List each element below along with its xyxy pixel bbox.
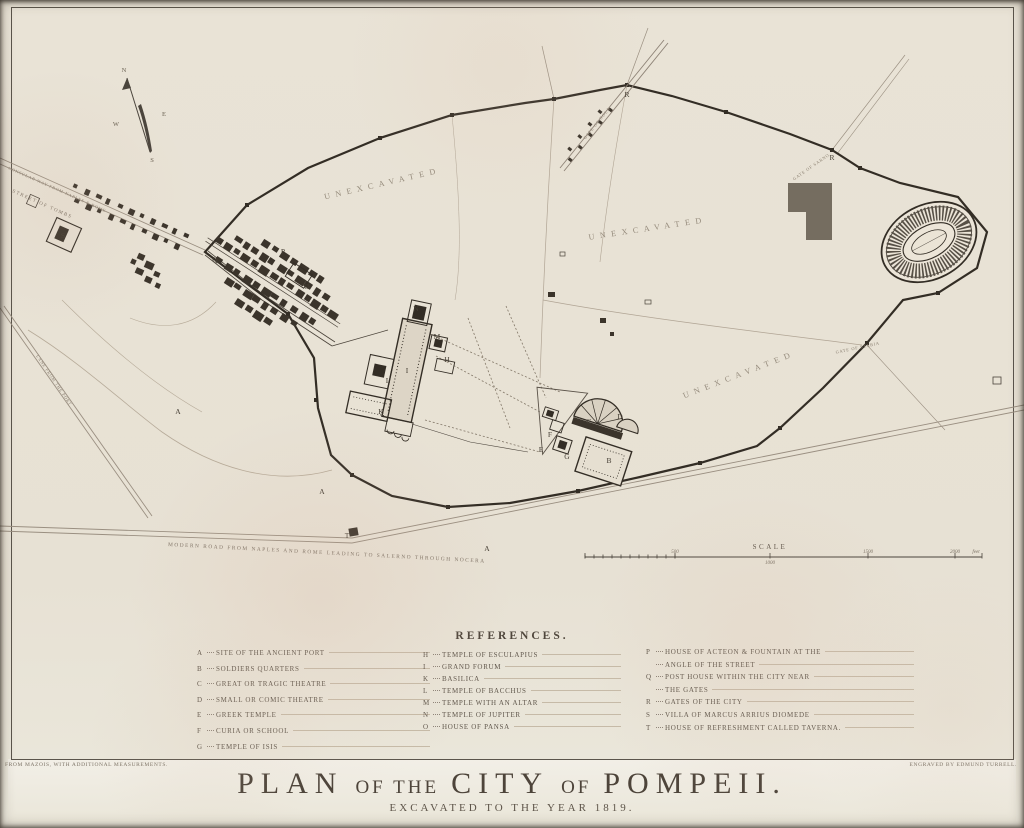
reference-entry-q: THE GATES bbox=[646, 686, 914, 694]
insula-block bbox=[257, 265, 270, 277]
leader-dots bbox=[207, 699, 214, 700]
leader-line bbox=[814, 714, 914, 715]
map-letter-t: T bbox=[345, 531, 350, 540]
insula-block bbox=[234, 298, 245, 309]
reference-entry-p: PHOUSE OF ACTEON & FOUNTAIN AT THE bbox=[646, 648, 914, 656]
title-word: OF bbox=[557, 777, 595, 799]
reference-letter: E bbox=[197, 711, 207, 719]
reference-label: TEMPLE OF ISIS bbox=[216, 743, 282, 751]
nw-excavated-blocks bbox=[185, 213, 357, 359]
leader-line bbox=[484, 678, 621, 679]
leader-line bbox=[514, 726, 621, 727]
reference-entry-i: IGRAND FORUM bbox=[423, 663, 621, 671]
leader-line bbox=[531, 690, 621, 691]
street-of-tombs-group bbox=[26, 183, 189, 289]
insula-block bbox=[252, 310, 265, 322]
leader-dots bbox=[656, 689, 663, 690]
tomb bbox=[161, 223, 168, 229]
map-letter-l: L bbox=[386, 376, 391, 385]
insula-block bbox=[309, 298, 321, 310]
title-block: PLAN OF THE CITY OF POMPEII. EXCAVATED T… bbox=[0, 767, 1024, 814]
reference-entry-n: NTEMPLE OF JUPITER bbox=[423, 711, 621, 719]
wall-tower bbox=[858, 166, 862, 170]
map-letter-a: A bbox=[175, 407, 181, 416]
title-word: POMPEII. bbox=[595, 767, 795, 801]
leader-line bbox=[814, 676, 914, 677]
leader-line bbox=[281, 714, 430, 715]
leader-dots bbox=[207, 652, 214, 653]
reference-label: SITE OF THE ANCIENT PORT bbox=[216, 649, 329, 657]
reference-label: GREEK TEMPLE bbox=[216, 711, 281, 719]
reference-letter: C bbox=[197, 680, 207, 688]
map-letter-o: O bbox=[304, 282, 310, 291]
wall-tower bbox=[576, 489, 580, 493]
reference-letter: D bbox=[197, 696, 207, 704]
insula-block bbox=[327, 309, 339, 320]
gate-suburb-buildings bbox=[125, 251, 169, 289]
leader-line bbox=[747, 701, 914, 702]
reference-letter: F bbox=[197, 727, 207, 735]
compass-w: W bbox=[113, 121, 120, 128]
reference-letter: A bbox=[197, 649, 207, 657]
tomb bbox=[73, 183, 78, 188]
reference-label: TEMPLE OF BACCHUS bbox=[442, 687, 531, 695]
insula-block bbox=[316, 275, 325, 284]
leader-line bbox=[293, 730, 430, 731]
tomb bbox=[171, 228, 177, 235]
tomb bbox=[149, 218, 156, 226]
reference-entry-g: GTEMPLE OF ISIS bbox=[197, 743, 430, 751]
reference-entry-q: QPOST HOUSE WITHIN THE CITY NEAR bbox=[646, 673, 914, 681]
leader-line bbox=[712, 689, 914, 690]
insula-block bbox=[299, 312, 310, 323]
unexcavated-label: UNEXCAVATED bbox=[323, 166, 441, 202]
reference-entry-r: RGATES OF THE CITY bbox=[646, 698, 914, 706]
insula-block bbox=[223, 242, 234, 252]
scale-tick-1000: 1000 bbox=[765, 561, 776, 566]
wall-tower bbox=[314, 398, 318, 402]
gate-of-nola-label: GATE OF NOLA bbox=[582, 106, 611, 140]
tomb bbox=[567, 147, 572, 152]
insula-block bbox=[241, 275, 253, 287]
tomb bbox=[152, 233, 160, 241]
leader-dots bbox=[433, 666, 440, 667]
compass-rose: N W E S bbox=[113, 67, 166, 164]
leader-line bbox=[825, 651, 914, 652]
theatre-district bbox=[516, 378, 645, 486]
reference-entry-a: ASITE OF THE ANCIENT PORT bbox=[197, 649, 430, 657]
map-letter-m: M bbox=[434, 332, 441, 341]
leader-line bbox=[525, 714, 621, 715]
insula-block bbox=[270, 306, 279, 315]
reference-letter: L bbox=[423, 687, 433, 695]
reference-letter: H bbox=[423, 651, 433, 659]
pompeii-plan-plate: N W E S SCALE 500 1000 1500 2000 feet UN… bbox=[0, 0, 1024, 828]
via-consolare bbox=[205, 251, 528, 452]
leader-dots bbox=[656, 727, 663, 728]
leader-line bbox=[330, 683, 430, 684]
reference-entry-o: OHOUSE OF PANSA bbox=[423, 723, 621, 731]
insula-block bbox=[286, 282, 295, 290]
map-letter-k: K bbox=[378, 407, 384, 416]
tomb bbox=[119, 218, 126, 224]
reference-label: TEMPLE OF JUPITER bbox=[442, 711, 525, 719]
insula-block bbox=[233, 248, 241, 255]
tomb bbox=[95, 194, 102, 200]
reference-label: BASILICA bbox=[442, 675, 484, 683]
map-letter-a: A bbox=[319, 487, 325, 496]
leader-line bbox=[542, 654, 621, 655]
unexcavated-label: UNEXCAVATED bbox=[588, 215, 707, 242]
leader-dots bbox=[433, 690, 440, 691]
title-word: PLAN bbox=[229, 767, 351, 801]
wall-tower bbox=[552, 97, 556, 101]
leader-dots bbox=[207, 730, 214, 731]
map-letter-q: Q bbox=[212, 255, 218, 264]
map-letter-g: G bbox=[564, 452, 570, 461]
wall-tower bbox=[446, 505, 450, 509]
insula-block bbox=[322, 292, 331, 301]
insula-block bbox=[260, 301, 269, 311]
reference-label: CURIA OR SCHOOL bbox=[216, 727, 293, 735]
reference-letter: Q bbox=[646, 673, 656, 681]
reference-entry-m: MTEMPLE WITH AN ALTAR bbox=[423, 699, 621, 707]
reference-label: SOLDIERS QUARTERS bbox=[216, 665, 304, 673]
leader-line bbox=[328, 699, 430, 700]
insula-block bbox=[242, 241, 251, 250]
wall-tower bbox=[724, 110, 728, 114]
leader-line bbox=[505, 666, 621, 667]
reference-entry-h: HTEMPLE OF ESCULAPIUS bbox=[423, 651, 621, 659]
tomb bbox=[139, 213, 144, 218]
title-word: OF THE bbox=[351, 777, 443, 799]
reference-label: HOUSE OF PANSA bbox=[442, 723, 514, 731]
reference-label: TEMPLE WITH AN ALTAR bbox=[442, 699, 542, 707]
leader-line bbox=[329, 652, 430, 653]
wall-tower bbox=[245, 203, 249, 207]
insula-block bbox=[260, 239, 271, 249]
leader-line bbox=[759, 664, 914, 665]
nola-gate-road bbox=[560, 40, 668, 171]
reference-entry-l: LTEMPLE OF BACCHUS bbox=[423, 687, 621, 695]
leader-dots bbox=[656, 701, 663, 702]
insula-block bbox=[308, 317, 316, 325]
wall-tower bbox=[378, 136, 382, 140]
consular-way-label: CONSULAR WAY FROM NAPLES & ROME bbox=[8, 165, 107, 213]
reference-letter: P bbox=[646, 648, 656, 656]
leader-dots bbox=[656, 676, 663, 677]
map-labels: UNEXCAVATED UNEXCAVATED UNEXCAVATED CONS… bbox=[8, 106, 881, 565]
map-letter-p: P bbox=[281, 247, 285, 256]
insula-block bbox=[240, 253, 251, 264]
reference-entry-b: BSOLDIERS QUARTERS bbox=[197, 665, 430, 673]
reference-entry-d: DSMALL OR COMIC THEATRE bbox=[197, 696, 430, 704]
reference-entry-p: ANGLE OF THE STREET bbox=[646, 661, 914, 669]
leader-line bbox=[542, 702, 621, 703]
reference-label: POST HOUSE WITHIN THE CITY NEAR bbox=[665, 673, 814, 681]
leader-line bbox=[304, 668, 430, 669]
shoreline-curves bbox=[28, 300, 332, 476]
reference-label: HOUSE OF ACTEON & FOUNTAIN AT THE bbox=[665, 648, 825, 656]
insula-block bbox=[250, 246, 259, 255]
reference-letter: K bbox=[423, 675, 433, 683]
reference-letter: I bbox=[423, 663, 433, 671]
tomb bbox=[117, 203, 123, 209]
forum-complex bbox=[343, 291, 466, 447]
insula-block bbox=[245, 304, 254, 313]
leader-dots bbox=[433, 678, 440, 679]
title-word: CITY bbox=[443, 767, 557, 801]
reference-entry-f: FCURIA OR SCHOOL bbox=[197, 727, 430, 735]
modern-road-label: MODERN ROAD FROM NAPLES AND ROME LEADING… bbox=[168, 542, 486, 565]
reference-letter: N bbox=[423, 711, 433, 719]
compass-s: S bbox=[150, 157, 154, 164]
scale-unit: feet bbox=[972, 550, 980, 555]
reference-letter: S bbox=[646, 711, 656, 719]
reference-entry-s: SVILLA OF MARCUS ARRIUS DIOMEDE bbox=[646, 711, 914, 719]
wall-tower bbox=[830, 148, 834, 152]
references-heading: REFERENCES. bbox=[12, 630, 1012, 642]
lane-from-port-label: LANE FROM THE PORT bbox=[35, 354, 73, 407]
wall-tower bbox=[698, 461, 702, 465]
insula-block bbox=[277, 277, 286, 286]
map-letter-e: E bbox=[539, 445, 544, 454]
leader-dots bbox=[656, 664, 663, 665]
references-column-1: ASITE OF THE ANCIENT PORTBSOLDIERS QUART… bbox=[197, 649, 430, 758]
leader-dots bbox=[207, 714, 214, 715]
reference-entry-e: EGREEK TEMPLE bbox=[197, 711, 430, 719]
leader-line bbox=[282, 746, 430, 747]
reference-label: TEMPLE OF ESCULAPIUS bbox=[442, 651, 542, 659]
reference-label: SMALL OR COMIC THEATRE bbox=[216, 696, 328, 704]
reference-letter: B bbox=[197, 665, 207, 673]
tomb bbox=[163, 238, 168, 243]
reference-letter: M bbox=[423, 699, 433, 707]
scale-bar: SCALE 500 1000 1500 2000 feet bbox=[585, 543, 982, 566]
compass-n: N bbox=[122, 67, 127, 74]
gate-of-sarno-label: GATE OF SARNO bbox=[792, 152, 831, 181]
leader-dots bbox=[207, 746, 214, 747]
leader-dots bbox=[656, 714, 663, 715]
wall-tower bbox=[350, 473, 354, 477]
reference-entry-k: KBASILICA bbox=[423, 675, 621, 683]
map-letter-h: H bbox=[444, 355, 450, 364]
leader-dots bbox=[207, 683, 214, 684]
tomb bbox=[141, 228, 147, 234]
shaded-area bbox=[788, 183, 832, 240]
tomb bbox=[84, 189, 91, 197]
insula-block bbox=[272, 245, 280, 252]
tomb bbox=[183, 233, 189, 239]
reference-label: HOUSE OF REFRESHMENT CALLED TAVERNA. bbox=[665, 724, 845, 732]
insula-block bbox=[308, 269, 318, 278]
reference-label: GREAT OR TRAGIC THEATRE bbox=[216, 680, 330, 688]
reference-label: ANGLE OF THE STREET bbox=[665, 661, 759, 669]
map-letter-b: B bbox=[606, 456, 611, 465]
map-letter-r: R bbox=[624, 90, 629, 99]
leader-dots bbox=[433, 714, 440, 715]
reference-label: GATES OF THE CITY bbox=[665, 698, 747, 706]
references-column-3: PHOUSE OF ACTEON & FOUNTAIN AT THEANGLE … bbox=[646, 648, 914, 736]
unexcavated-label: UNEXCAVATED bbox=[682, 349, 797, 400]
tomb bbox=[128, 208, 136, 216]
reference-letter: R bbox=[646, 698, 656, 706]
scale-tick-500: 500 bbox=[671, 550, 679, 555]
map-letter-r: R bbox=[829, 153, 834, 162]
street-grid bbox=[425, 306, 560, 452]
insula-block bbox=[269, 272, 279, 281]
amphitheatre bbox=[867, 186, 990, 298]
map-letter-a: A bbox=[484, 544, 490, 553]
reference-letter: O bbox=[423, 723, 433, 731]
map-letter-f: F bbox=[548, 430, 552, 439]
reference-label: THE GATES bbox=[665, 686, 712, 694]
page-title: PLAN OF THE CITY OF POMPEII. bbox=[0, 767, 1024, 801]
scattered-buildings bbox=[348, 252, 1001, 537]
scale-tick-2000: 2000 bbox=[950, 550, 961, 555]
map-letter-d: D bbox=[617, 412, 623, 421]
insula-block bbox=[263, 316, 273, 325]
leader-dots bbox=[207, 668, 214, 669]
leader-line bbox=[845, 727, 914, 728]
reference-label: VILLA OF MARCUS ARRIUS DIOMEDE bbox=[665, 711, 814, 719]
leader-dots bbox=[433, 726, 440, 727]
leader-dots bbox=[656, 651, 663, 652]
wall-tower bbox=[936, 291, 940, 295]
reference-entry-c: CGREAT OR TRAGIC THEATRE bbox=[197, 680, 430, 688]
reference-letter: G bbox=[197, 743, 207, 751]
tomb bbox=[105, 198, 111, 205]
reference-letter: T bbox=[646, 724, 656, 732]
insula-block bbox=[233, 282, 242, 290]
scale-tick-1500: 1500 bbox=[863, 550, 874, 555]
compass-e: E bbox=[162, 111, 166, 118]
map-letter-c: C bbox=[586, 417, 591, 426]
subtitle: EXCAVATED TO THE YEAR 1819. bbox=[0, 802, 1024, 814]
reference-entry-t: THOUSE OF REFRESHMENT CALLED TAVERNA. bbox=[646, 724, 914, 732]
reference-label: GRAND FORUM bbox=[442, 663, 505, 671]
references-column-2: HTEMPLE OF ESCULAPIUSIGRAND FORUMKBASILI… bbox=[423, 651, 621, 735]
scale-title: SCALE bbox=[753, 543, 788, 551]
wall-tower bbox=[778, 426, 782, 430]
map-letter-s: S bbox=[61, 231, 65, 240]
insula-block bbox=[224, 277, 235, 288]
reference-letters-layer: AAABCDEFGHIKLMNOPQRRST bbox=[61, 90, 835, 553]
insula-block bbox=[312, 287, 321, 297]
leader-dots bbox=[433, 654, 440, 655]
insula-block bbox=[277, 264, 288, 275]
map-letter-n: N bbox=[413, 304, 419, 313]
wall-tower bbox=[450, 113, 454, 117]
leader-dots bbox=[433, 702, 440, 703]
insula-block bbox=[234, 235, 243, 244]
